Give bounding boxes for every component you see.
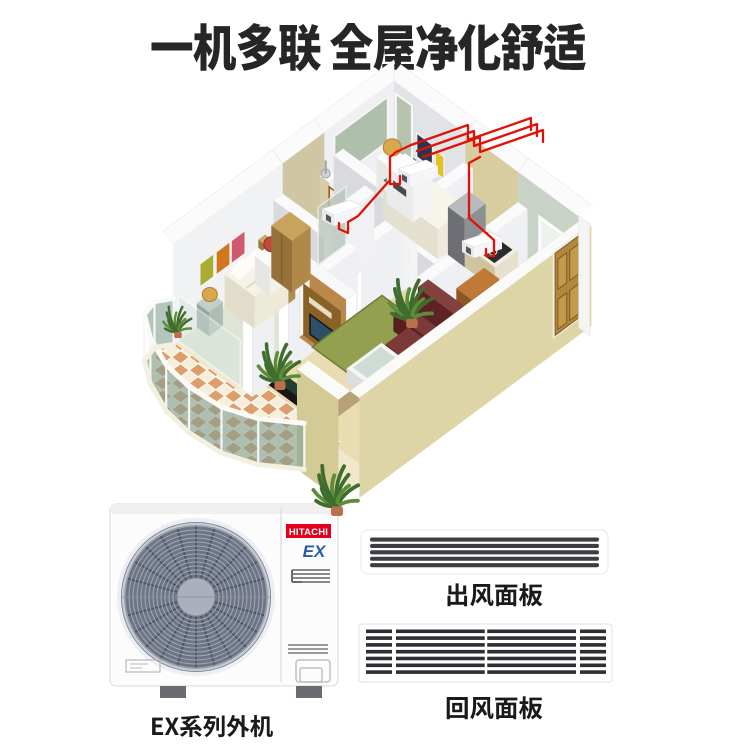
svg-text:HITACHI: HITACHI (289, 527, 328, 538)
svg-text:EX: EX (303, 542, 327, 561)
